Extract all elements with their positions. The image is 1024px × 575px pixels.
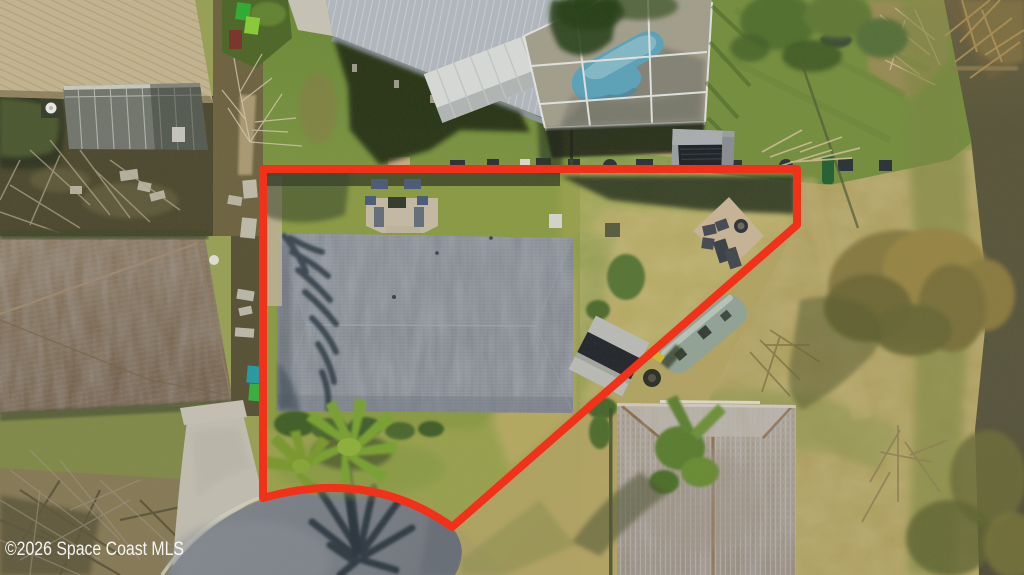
svg-text:©2026 Space Coast MLS: ©2026 Space Coast MLS (5, 538, 184, 560)
